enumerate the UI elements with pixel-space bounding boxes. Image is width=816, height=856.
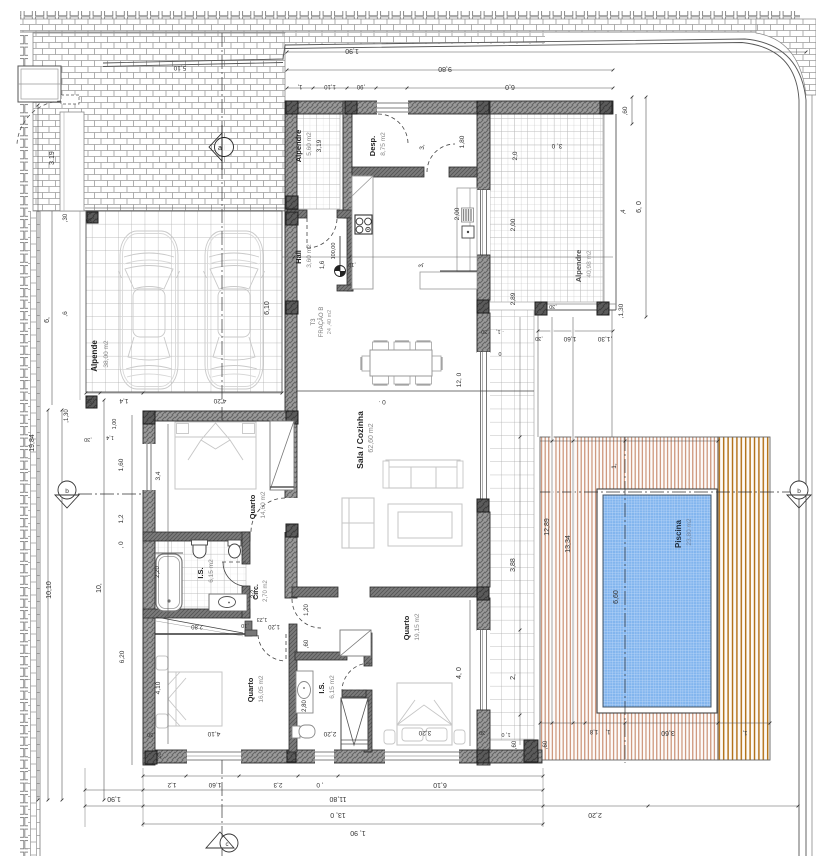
svg-text:2,2: 2,2: [251, 589, 257, 598]
svg-text:2,3: 2,3: [273, 781, 282, 788]
svg-text:1,: 1,: [742, 729, 747, 735]
svg-text:,1,30: ,1,30: [64, 409, 70, 423]
svg-text:,30: ,30: [147, 731, 155, 737]
svg-text:a: a: [218, 145, 222, 152]
svg-text:,30: ,30: [85, 397, 94, 403]
svg-text:,30: ,30: [481, 328, 489, 334]
svg-text:1,10: 1,10: [324, 83, 336, 89]
svg-text:, 0: , 0: [316, 781, 324, 788]
svg-text:Quarto: Quarto: [402, 615, 411, 640]
svg-text:1,4: 1,4: [119, 397, 128, 404]
svg-text:4,10: 4,10: [155, 681, 162, 694]
svg-text:1,90: 1,90: [345, 47, 359, 54]
svg-text:1,20: 1,20: [268, 623, 280, 629]
svg-text:1,6: 1,6: [320, 260, 326, 269]
svg-text:2,20: 2,20: [155, 566, 161, 578]
svg-text:38,00 m2: 38,00 m2: [103, 340, 110, 367]
svg-text:1,2: 1,2: [167, 781, 176, 788]
svg-text:,30: ,30: [157, 752, 163, 759]
svg-text:,30: ,30: [84, 436, 92, 442]
svg-text:3.19: 3.19: [49, 151, 56, 165]
svg-text:16,05 m2: 16,05 m2: [258, 675, 265, 702]
svg-text:Alpendre: Alpendre: [294, 130, 303, 163]
svg-text:Piscina: Piscina: [674, 519, 683, 548]
svg-text:1,60: 1,60: [208, 781, 221, 788]
svg-text:, 0: , 0: [118, 541, 125, 549]
svg-text:6,15 m2: 6,15 m2: [208, 559, 215, 583]
svg-text:2,20: 2,20: [323, 730, 336, 737]
svg-text:,60: ,60: [543, 740, 549, 749]
svg-text:b: b: [65, 488, 69, 495]
svg-text:14,60 m2: 14,60 m2: [260, 491, 267, 518]
svg-text:1,60: 1,60: [563, 335, 576, 342]
svg-text:3,60 m2: 3,60 m2: [306, 244, 313, 268]
svg-text:Alpendre: Alpendre: [574, 250, 583, 283]
svg-text:0 ·: 0 ·: [378, 398, 386, 405]
svg-text:3,4: 3,4: [155, 471, 162, 480]
svg-text:,60: ,60: [622, 106, 629, 115]
svg-text:,30: ,30: [549, 303, 557, 309]
svg-text:2,80: 2,80: [302, 700, 308, 712]
svg-text:1,8: 1,8: [589, 728, 598, 734]
svg-text:T3: T3: [311, 318, 317, 326]
svg-text:5,10: 5,10: [173, 64, 186, 71]
svg-text:10,10: 10,10: [46, 581, 53, 599]
svg-text:· 1,: · 1,: [496, 328, 504, 334]
svg-text:1,60: 1,60: [118, 458, 125, 471]
svg-text:6,10: 6,10: [264, 301, 271, 315]
svg-text:1, 90: 1, 90: [350, 829, 366, 836]
svg-text:2,00: 2,00: [454, 207, 461, 220]
svg-text:1,: 1,: [297, 83, 302, 89]
svg-text:Quarto: Quarto: [248, 494, 257, 519]
svg-text:2,0: 2,0: [512, 151, 519, 160]
svg-text:2,80: 2,80: [191, 623, 203, 629]
svg-text:6,0: 6,0: [505, 83, 515, 90]
svg-text:6,15 m2: 6,15 m2: [329, 675, 336, 699]
svg-text:4,10: 4,10: [207, 730, 220, 737]
svg-text:3,19: 3,19: [316, 139, 323, 152]
svg-text:6,60: 6,60: [613, 590, 620, 604]
svg-text:,6: ,6: [62, 311, 69, 317]
svg-text:2,70 m2: 2,70 m2: [263, 580, 269, 602]
svg-text:I.S.: I.S.: [317, 682, 326, 693]
svg-text:8,75 m2: 8,75 m2: [380, 132, 387, 156]
svg-text:13, 0: 13, 0: [330, 811, 346, 818]
svg-text:19,84: 19,84: [29, 434, 36, 452]
svg-text:19,15 m2: 19,15 m2: [414, 613, 421, 640]
svg-text:1,90: 1,90: [107, 795, 121, 802]
svg-text:,30: ,30: [479, 729, 487, 735]
svg-text:Quarto: Quarto: [246, 677, 255, 702]
svg-text:6,10: 6,10: [433, 781, 447, 788]
svg-text:11,80: 11,80: [329, 795, 346, 802]
svg-text:12,89: 12,89: [544, 518, 551, 536]
svg-text:,60: ,60: [304, 639, 310, 648]
svg-text:,90: ,90: [356, 83, 365, 89]
svg-text:3,88: 3,88: [510, 558, 517, 572]
svg-text:,1,30: ,1,30: [597, 335, 612, 342]
svg-text:1, 0: 1, 0: [501, 731, 510, 737]
svg-text:,1,30: ,1,30: [618, 303, 625, 318]
svg-text:1,: 1,: [605, 728, 610, 734]
svg-text:6,: 6,: [44, 317, 51, 323]
svg-text:40,98 m2: 40,98 m2: [586, 250, 593, 277]
svg-text:Sala / Cozinha: Sala / Cozinha: [355, 411, 365, 469]
svg-text:,60: ,60: [512, 740, 518, 749]
svg-text:4, 0: 4, 0: [456, 667, 463, 679]
svg-text:1,4: 1,4: [106, 434, 114, 440]
svg-text:4,20: 4,20: [213, 397, 226, 404]
svg-text:2,20: 2,20: [588, 811, 602, 818]
svg-text:5,60 m2: 5,60 m2: [306, 132, 313, 156]
svg-text:,30: ,30: [63, 213, 69, 222]
svg-text:1,2: 1,2: [118, 514, 125, 523]
svg-text:,30: ,30: [85, 216, 94, 222]
svg-text:,4: ,4: [621, 209, 627, 215]
svg-text:23,80 m2: 23,80 m2: [686, 518, 693, 545]
svg-text:3,: 3,: [419, 144, 426, 150]
svg-text:3,60: 3,60: [661, 729, 675, 736]
svg-text:3, 0: 3, 0: [551, 142, 562, 149]
svg-text:62,60 m2: 62,60 m2: [368, 423, 375, 452]
svg-text:3,: 3,: [419, 262, 425, 267]
svg-text:Alpende: Alpende: [90, 340, 99, 372]
svg-text:1,80: 1,80: [459, 135, 466, 148]
svg-text:b: b: [797, 488, 801, 495]
svg-text:c: c: [226, 842, 229, 848]
svg-text:10,: 10,: [96, 583, 103, 593]
svg-text:1,: 1,: [611, 463, 618, 469]
svg-text:,10: ,10: [241, 622, 249, 628]
svg-text:FRAÇÃO B: FRAÇÃO B: [318, 307, 325, 338]
svg-text:3,20: 3,20: [418, 729, 431, 736]
svg-text:6, 0: 6, 0: [636, 201, 643, 213]
svg-text:0: 0: [498, 350, 501, 356]
svg-text:9,80: 9,80: [438, 65, 452, 72]
svg-text:I.S.: I.S.: [196, 567, 205, 578]
svg-text:12, 0: 12, 0: [456, 372, 463, 387]
svg-text:Desp.: Desp.: [368, 136, 377, 156]
svg-text:,30: ,30: [535, 335, 543, 341]
svg-text:24 ,40 m2: 24 ,40 m2: [327, 310, 333, 334]
svg-text:13,34: 13,34: [565, 535, 572, 553]
svg-text:2,89: 2,89: [510, 292, 517, 305]
svg-text:,10: ,10: [348, 261, 356, 267]
svg-text:1,20: 1,20: [304, 604, 310, 616]
svg-text:1,23: 1,23: [257, 616, 268, 622]
svg-text:2,00: 2,00: [510, 218, 517, 231]
svg-text:1,00: 1,00: [112, 419, 118, 430]
svg-text:2,: 2,: [510, 674, 517, 680]
svg-text:6,20: 6,20: [119, 650, 126, 663]
